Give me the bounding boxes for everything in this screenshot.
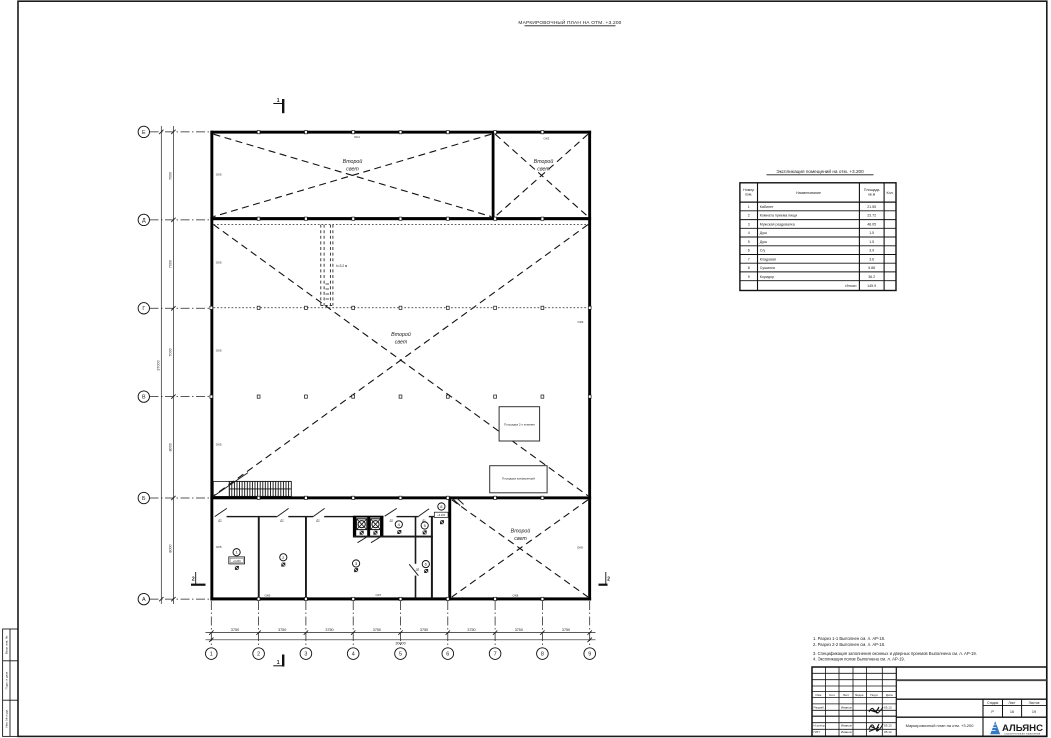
svg-text:9: 9 <box>588 652 591 658</box>
svg-text:ОК4: ОК4 <box>354 135 360 139</box>
svg-text:05.12: 05.12 <box>884 706 892 710</box>
svg-text:Мужская раздевалка: Мужская раздевалка <box>760 223 795 227</box>
svg-text:7: 7 <box>494 652 497 658</box>
svg-text:строительная компания: строительная компания <box>1004 732 1040 735</box>
svg-text:Иванов: Иванов <box>841 730 852 734</box>
svg-text:h=3.2 м: h=3.2 м <box>336 264 347 268</box>
svg-text:Кол.: Кол. <box>829 693 835 697</box>
svg-text:Кладовая: Кладовая <box>760 257 776 261</box>
svg-text:2: 2 <box>192 577 195 583</box>
svg-text:4: 4 <box>352 652 355 658</box>
svg-text:Б: Б <box>142 496 146 502</box>
svg-text:Второй: Второй <box>343 158 363 165</box>
svg-text:3750: 3750 <box>467 628 475 632</box>
svg-text:Лист: Лист <box>843 693 850 697</box>
svg-text:37000: 37000 <box>157 360 161 370</box>
svg-text:А: А <box>142 597 146 603</box>
svg-text:3. Спецификация заполнения око: 3. Спецификация заполнения оконных и две… <box>813 651 977 656</box>
svg-text:ОК6: ОК6 <box>265 594 271 598</box>
svg-text:1: 1 <box>210 652 213 658</box>
svg-text:1: 1 <box>277 98 280 104</box>
svg-text:3750: 3750 <box>515 628 523 632</box>
svg-text:5: 5 <box>748 240 750 244</box>
svg-text:Комната приема пищи: Комната приема пищи <box>760 214 797 218</box>
svg-text:8000: 8000 <box>169 544 173 552</box>
svg-text:Кол.: Кол. <box>887 191 894 195</box>
svg-text:4: 4 <box>748 231 750 235</box>
svg-text:1.5: 1.5 <box>869 231 874 235</box>
svg-text:16: 16 <box>1010 710 1014 714</box>
svg-text:Листов: Листов <box>1029 701 1040 705</box>
svg-text:2: 2 <box>748 214 750 218</box>
svg-text:Г: Г <box>142 306 145 312</box>
svg-text:Лист: Лист <box>1008 701 1016 705</box>
svg-text:6: 6 <box>748 249 750 253</box>
svg-text:свет: свет <box>537 167 550 173</box>
svg-text:Номер: Номер <box>743 188 754 192</box>
svg-text:2: 2 <box>257 652 260 658</box>
svg-text:Площадка конференций: Площадка конференций <box>502 477 535 481</box>
svg-text:5.88: 5.88 <box>868 266 875 270</box>
svg-text:9: 9 <box>748 275 750 279</box>
svg-text:1: 1 <box>748 205 750 209</box>
svg-text:21.55: 21.55 <box>867 205 876 209</box>
svg-text:Подп. и дата: Подп. и дата <box>4 671 8 689</box>
svg-text:Площадь: Площадь <box>864 188 880 192</box>
svg-text:Второй: Второй <box>391 331 411 338</box>
svg-text:Душ: Душ <box>760 240 767 244</box>
svg-text:кв.м: кв.м <box>868 193 875 197</box>
svg-text:3750: 3750 <box>325 628 333 632</box>
svg-text:ГИП: ГИП <box>814 730 820 734</box>
svg-text:№док.: №док. <box>855 693 864 697</box>
svg-text:8: 8 <box>748 266 750 270</box>
svg-text:Разраб.: Разраб. <box>814 706 825 710</box>
svg-text:Д2: Д2 <box>390 518 394 522</box>
svg-text:Изм.: Изм. <box>815 693 822 697</box>
svg-text:3.9: 3.9 <box>869 249 874 253</box>
svg-text:3750: 3750 <box>420 628 428 632</box>
svg-text:1: 1 <box>277 660 280 666</box>
svg-text:3.6: 3.6 <box>869 257 874 261</box>
svg-text:05.12: 05.12 <box>884 724 892 728</box>
svg-text:ОК9: ОК9 <box>578 320 584 324</box>
svg-text:ОК5: ОК5 <box>216 261 222 265</box>
svg-text:4. Экспликация полов Выполнена: 4. Экспликация полов Выполнена см. л. АР… <box>813 656 905 661</box>
svg-text:пом.: пом. <box>745 193 752 197</box>
svg-text:ОК8: ОК8 <box>513 593 519 597</box>
svg-text:Д3: Д3 <box>416 567 420 571</box>
svg-text:Е: Е <box>142 130 146 136</box>
svg-text:Площадка 2-х этажная: Площадка 2-х этажная <box>504 422 535 426</box>
svg-text:3750: 3750 <box>373 628 381 632</box>
svg-text:свет: свет <box>346 167 359 173</box>
svg-text:Сушилка: Сушилка <box>760 266 775 270</box>
svg-text:8: 8 <box>541 652 544 658</box>
svg-text:Д2: Д2 <box>316 518 320 522</box>
svg-text:Инв. № подл.: Инв. № подл. <box>4 709 8 728</box>
svg-text:3750: 3750 <box>278 628 286 632</box>
svg-text:5: 5 <box>399 652 402 658</box>
svg-text:ОК3: ОК3 <box>544 137 550 141</box>
svg-text:Коридор: Коридор <box>760 275 774 279</box>
svg-text:48.05: 48.05 <box>867 223 876 227</box>
svg-text:Кабинет: Кабинет <box>760 205 774 209</box>
svg-text:7000: 7000 <box>169 172 173 180</box>
svg-text:Стадия: Стадия <box>987 701 998 705</box>
svg-text:2. Разрез 2-2 Выполнен см. л.: 2. Разрез 2-2 Выполнен см. л. АР-18. <box>813 642 885 647</box>
svg-text:Душ: Душ <box>760 231 767 235</box>
svg-text:Иванов: Иванов <box>841 706 852 710</box>
svg-text:ОК5: ОК5 <box>216 545 222 549</box>
svg-text:Д2: Д2 <box>280 518 284 522</box>
svg-text:3: 3 <box>304 652 307 658</box>
svg-text:Наименование: Наименование <box>796 191 821 195</box>
svg-text:Дата: Дата <box>886 693 893 697</box>
svg-text:ОК5: ОК5 <box>216 349 222 353</box>
svg-text:36.2: 36.2 <box>868 275 875 279</box>
svg-text:ОК5: ОК5 <box>216 443 222 447</box>
svg-text:Маркировочный план на отм. +3.: Маркировочный план на отм. +3.200 <box>906 723 975 728</box>
svg-text:+3.200: +3.200 <box>437 513 446 517</box>
svg-text:7: 7 <box>748 257 750 261</box>
svg-text:Иванов: Иванов <box>841 724 852 728</box>
svg-text:6: 6 <box>446 652 449 658</box>
svg-text:2: 2 <box>607 577 610 583</box>
svg-text:свет: свет <box>514 536 527 542</box>
svg-text:Второй: Второй <box>511 528 531 535</box>
svg-text:ОК5: ОК5 <box>216 173 222 177</box>
svg-text:3750: 3750 <box>231 628 239 632</box>
svg-text:3750: 3750 <box>562 628 570 632</box>
svg-text:свет: свет <box>395 340 408 346</box>
svg-text:7000: 7000 <box>169 348 173 356</box>
svg-text:С/у: С/у <box>760 249 766 253</box>
svg-text:1.5: 1.5 <box>869 240 874 244</box>
svg-text:7000: 7000 <box>169 260 173 268</box>
svg-text:1. Разрез 1-1 Выполнен см. л.: 1. Разрез 1-1 Выполнен см. л. АР-18. <box>813 636 885 641</box>
svg-text:145.9: 145.9 <box>867 284 876 288</box>
svg-text:ОК8: ОК8 <box>577 546 583 550</box>
svg-text:23.72: 23.72 <box>867 214 876 218</box>
svg-text:Итого: Итого <box>845 284 856 288</box>
svg-text:Д2: Д2 <box>218 518 222 522</box>
svg-text:В: В <box>142 395 146 401</box>
svg-text:+3.200: +3.200 <box>233 559 242 563</box>
svg-text:3: 3 <box>748 223 750 227</box>
svg-text:Р: Р <box>991 710 994 714</box>
svg-text:ОК7: ОК7 <box>376 593 382 597</box>
svg-text:19: 19 <box>1032 710 1036 714</box>
svg-text:05.12: 05.12 <box>884 730 892 734</box>
svg-text:Подп.: Подп. <box>870 693 878 697</box>
svg-text:Взам. инв. №: Взам. инв. № <box>4 635 8 654</box>
svg-text:Н.контр.: Н.контр. <box>814 724 826 728</box>
svg-text:Второй: Второй <box>534 158 554 165</box>
svg-text:Д: Д <box>142 218 146 224</box>
svg-text:8000: 8000 <box>169 443 173 451</box>
svg-text:Экспликация помещений на отм.: Экспликация помещений на отм. +3.200 <box>776 168 864 174</box>
svg-text:30000: 30000 <box>395 642 405 646</box>
